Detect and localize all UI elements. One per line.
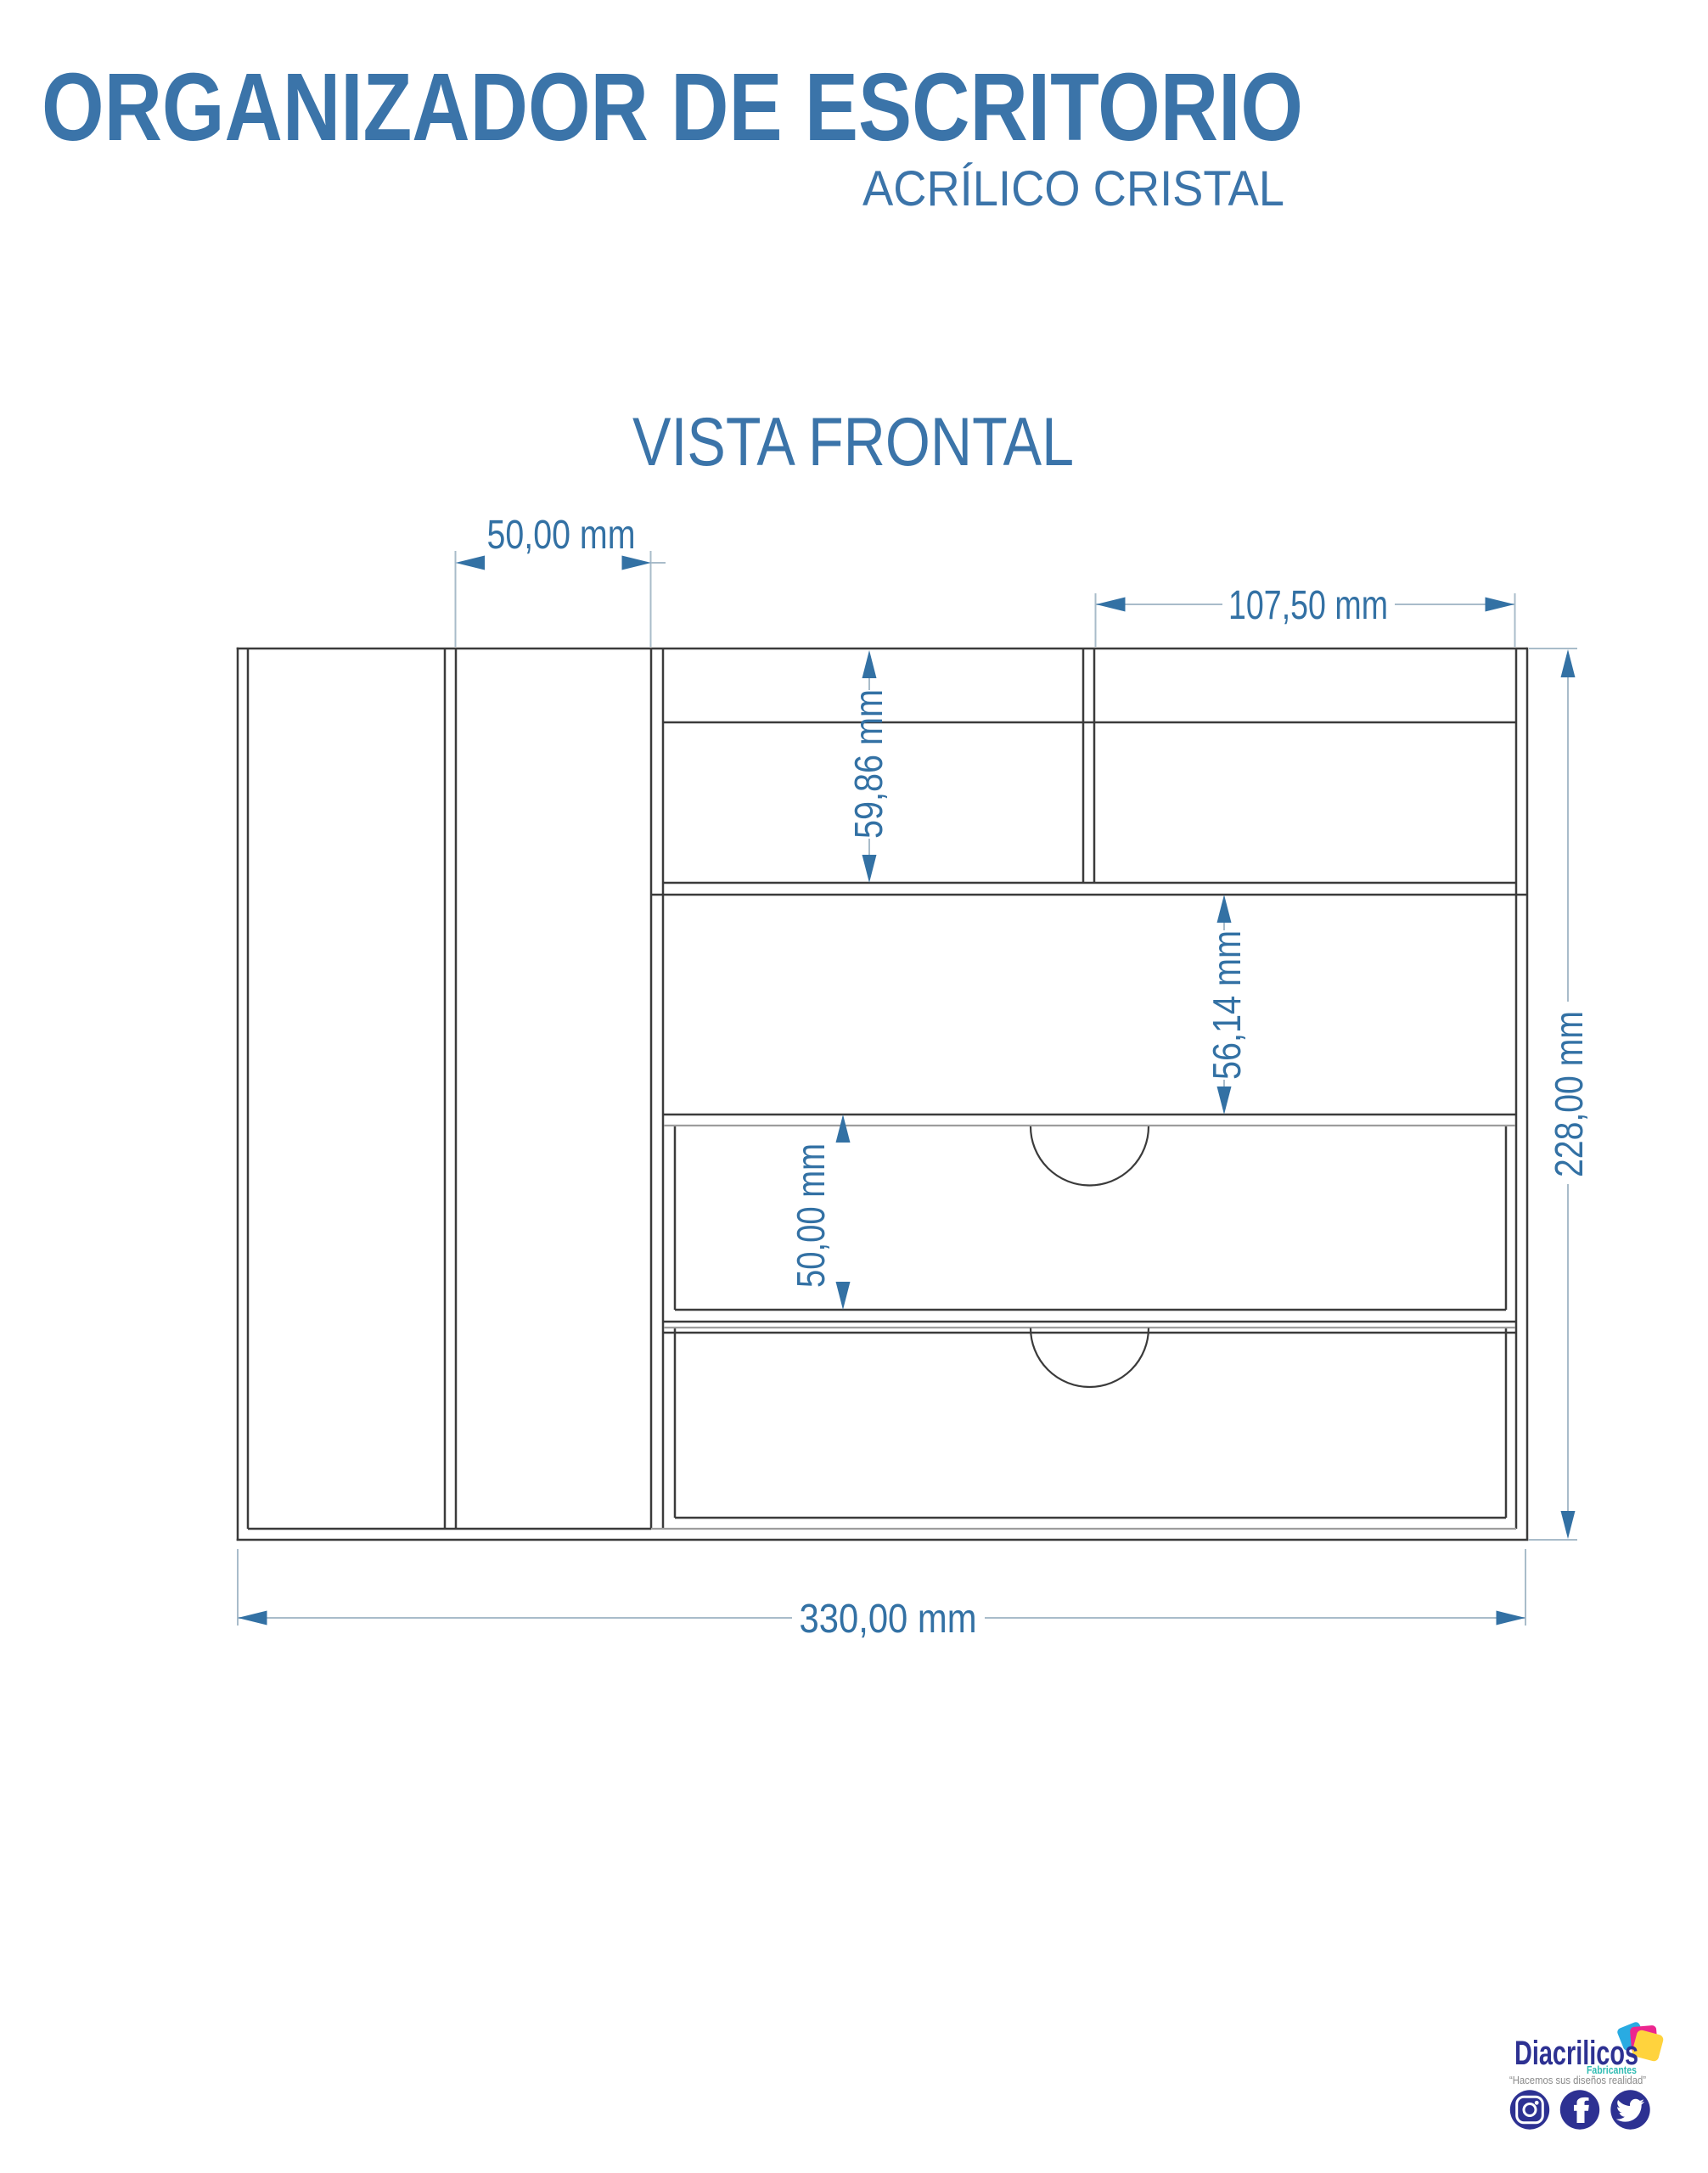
- svg-text:50,00 mm: 50,00 mm: [789, 1143, 833, 1288]
- svg-text:56,14 mm: 56,14 mm: [1205, 930, 1249, 1080]
- svg-text:59,86 mm: 59,86 mm: [846, 689, 891, 839]
- svg-text:ACRÍLICO CRISTAL: ACRÍLICO CRISTAL: [862, 161, 1284, 216]
- svg-text:107,50 mm: 107,50 mm: [1228, 583, 1388, 628]
- svg-text:ORGANIZADOR DE ESCRITORIO: ORGANIZADOR DE ESCRITORIO: [42, 53, 1303, 160]
- svg-text:228,00 mm: 228,00 mm: [1547, 1011, 1591, 1177]
- svg-text:50,00 mm: 50,00 mm: [487, 513, 636, 558]
- svg-text:“Hacemos sus diseños realidad”: “Hacemos sus diseños realidad”: [1509, 2075, 1646, 2086]
- svg-text:VISTA FRONTAL: VISTA FRONTAL: [632, 404, 1074, 480]
- svg-text:330,00 mm: 330,00 mm: [800, 1597, 977, 1642]
